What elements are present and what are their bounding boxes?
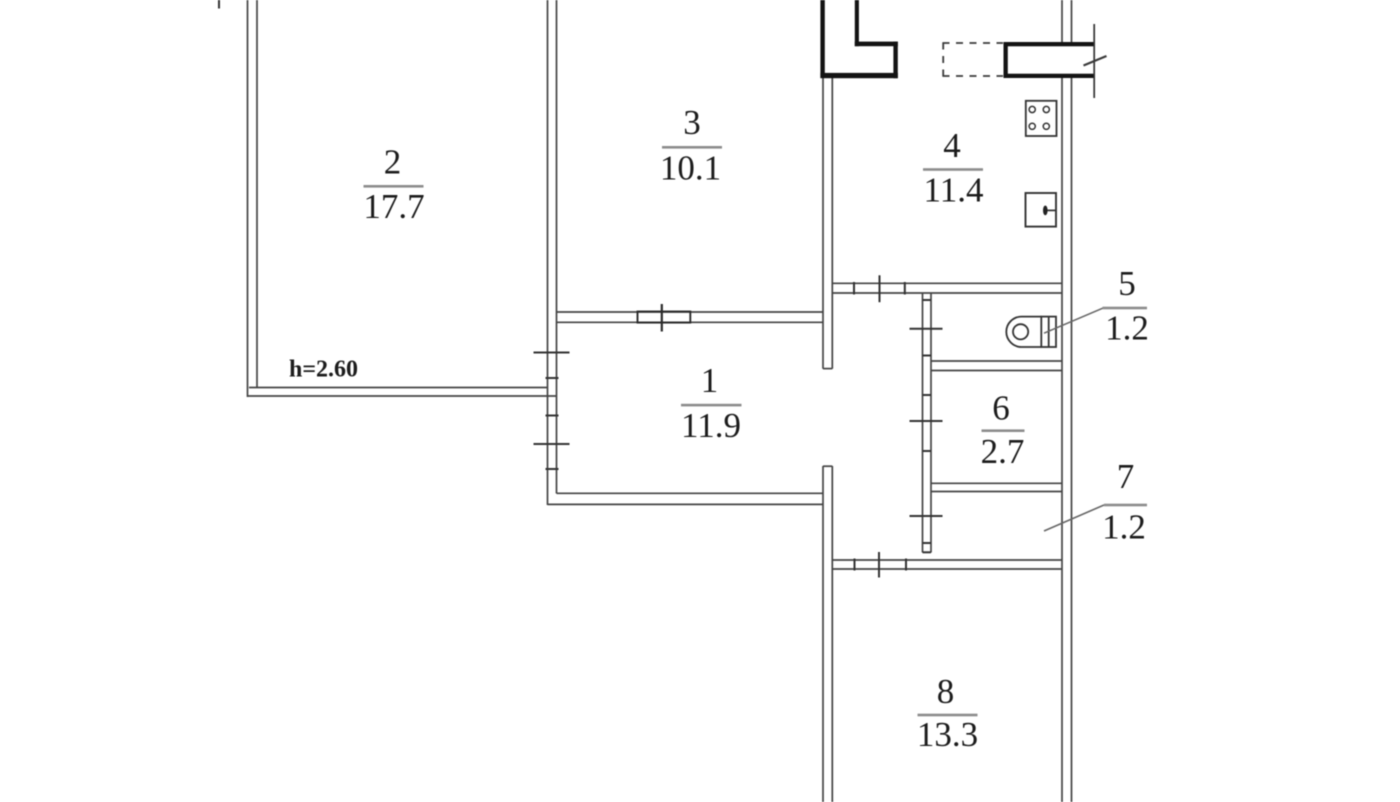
svg-text:13.3: 13.3 bbox=[917, 715, 978, 754]
svg-text:3: 3 bbox=[683, 103, 701, 142]
svg-text:5: 5 bbox=[1118, 264, 1136, 303]
svg-text:1.2: 1.2 bbox=[1105, 309, 1149, 348]
svg-text:1: 1 bbox=[701, 361, 719, 400]
svg-text:4: 4 bbox=[943, 126, 961, 165]
svg-text:7: 7 bbox=[1117, 457, 1135, 496]
svg-text:2.7: 2.7 bbox=[981, 432, 1025, 471]
svg-text:h=2.60: h=2.60 bbox=[289, 357, 358, 383]
svg-text:11.9: 11.9 bbox=[681, 406, 741, 445]
svg-text:2: 2 bbox=[384, 143, 402, 182]
svg-text:1.2: 1.2 bbox=[1102, 508, 1146, 547]
svg-text:8: 8 bbox=[937, 672, 955, 711]
svg-text:17.7: 17.7 bbox=[363, 187, 424, 226]
svg-text:11.4: 11.4 bbox=[924, 170, 984, 209]
svg-text:6: 6 bbox=[992, 389, 1010, 428]
svg-text:10.1: 10.1 bbox=[660, 149, 721, 188]
